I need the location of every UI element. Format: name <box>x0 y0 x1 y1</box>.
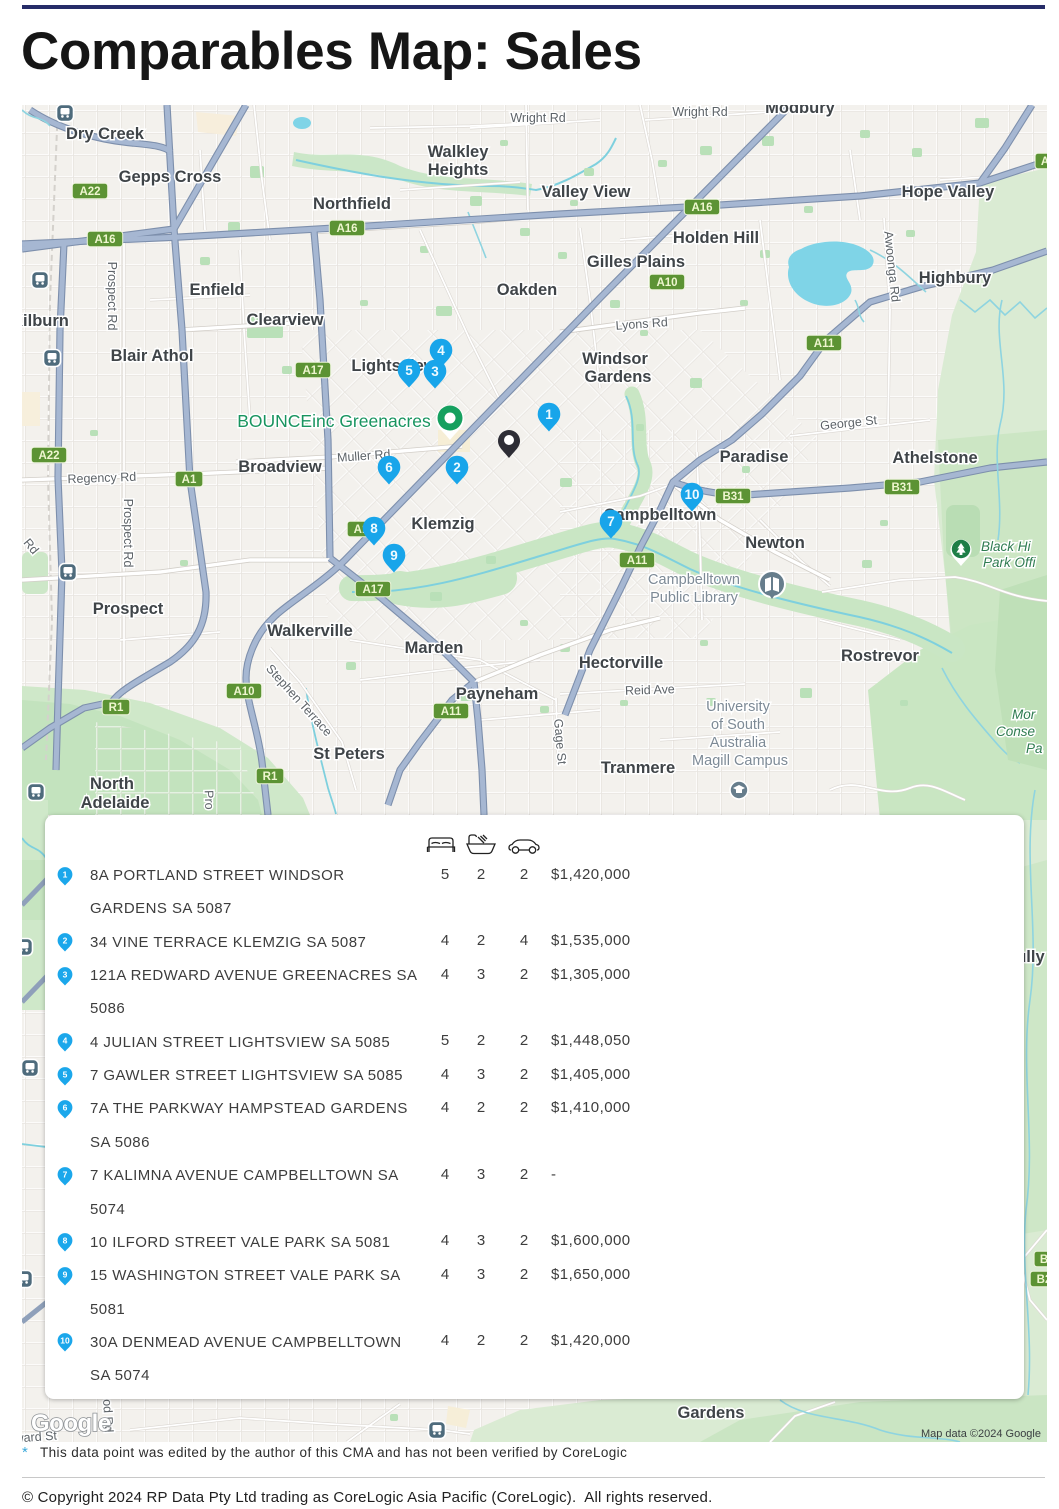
svg-text:2: 2 <box>63 936 68 946</box>
svg-text:Pro: Pro <box>202 790 217 810</box>
svg-text:Highbury: Highbury <box>919 269 992 287</box>
svg-text:Valley View: Valley View <box>542 183 631 201</box>
svg-text:Magill Campus: Magill Campus <box>692 753 788 769</box>
svg-text:Blair Athol: Blair Athol <box>111 347 194 365</box>
svg-text:3: 3 <box>431 364 439 379</box>
svg-text:A10: A10 <box>656 277 677 289</box>
svg-text:B: B <box>1040 1254 1047 1266</box>
svg-text:3: 3 <box>63 969 68 979</box>
svg-text:Gilles Plains: Gilles Plains <box>587 253 685 271</box>
svg-text:Marden: Marden <box>405 639 464 657</box>
svg-text:7: 7 <box>63 1169 68 1179</box>
svg-text:4: 4 <box>63 1036 68 1046</box>
svg-text:Kilburn: Kilburn <box>22 312 69 330</box>
svg-text:9: 9 <box>63 1269 68 1279</box>
svg-text:Pa: Pa <box>1026 741 1043 756</box>
svg-text:Dry Creek: Dry Creek <box>66 125 145 143</box>
svg-text:Holden Hill: Holden Hill <box>673 229 759 247</box>
svg-text:A16: A16 <box>691 202 712 214</box>
svg-text:Walkerville: Walkerville <box>267 622 353 640</box>
svg-text:B31: B31 <box>722 491 744 503</box>
svg-text:Hope Valley: Hope Valley <box>902 183 995 201</box>
svg-text:2: 2 <box>453 460 461 475</box>
svg-text:Northfield: Northfield <box>313 195 391 213</box>
svg-text:Mor: Mor <box>1012 707 1036 722</box>
svg-text:A22: A22 <box>38 450 59 462</box>
svg-text:8: 8 <box>370 521 378 536</box>
svg-text:University: University <box>706 699 770 715</box>
svg-text:10: 10 <box>60 1336 70 1346</box>
svg-text:A16: A16 <box>94 234 115 246</box>
svg-text:B2: B2 <box>1037 1274 1047 1286</box>
svg-text:5: 5 <box>63 1069 68 1079</box>
svg-text:10: 10 <box>684 487 699 502</box>
svg-text:Tranmere: Tranmere <box>601 759 675 777</box>
svg-text:BOUNCEinc Greenacres: BOUNCEinc Greenacres <box>237 411 431 431</box>
svg-text:A22: A22 <box>79 186 100 198</box>
svg-text:Conse: Conse <box>996 724 1035 739</box>
svg-text:St Peters: St Peters <box>313 745 385 763</box>
svg-text:5: 5 <box>405 363 413 378</box>
svg-text:A11: A11 <box>441 706 462 718</box>
svg-text:A1: A1 <box>182 474 197 486</box>
svg-text:A10: A10 <box>233 686 254 698</box>
svg-text:6: 6 <box>385 460 393 475</box>
svg-text:7: 7 <box>607 514 615 529</box>
svg-text:Wright Rd: Wright Rd <box>510 111 565 125</box>
svg-text:Park Offi: Park Offi <box>983 555 1037 570</box>
svg-text:Walkley: Walkley <box>428 143 490 161</box>
svg-text:A17: A17 <box>302 365 323 377</box>
svg-text:Gardens: Gardens <box>678 1404 745 1422</box>
svg-text:A16: A16 <box>336 223 357 235</box>
svg-text:Heights: Heights <box>428 161 489 179</box>
svg-text:Oakden: Oakden <box>497 281 558 299</box>
svg-text:Athelstone: Athelstone <box>892 449 977 467</box>
svg-text:Wright Rd: Wright Rd <box>672 105 727 119</box>
svg-text:Map data ©2024 Google: Map data ©2024 Google <box>921 1428 1041 1440</box>
svg-text:Paradise: Paradise <box>720 448 789 466</box>
svg-text:Modbury: Modbury <box>765 105 835 117</box>
svg-text:R1: R1 <box>109 702 124 714</box>
svg-text:Payneham: Payneham <box>456 685 539 703</box>
svg-text:of South: of South <box>711 717 765 733</box>
svg-text:Klemzig: Klemzig <box>411 515 474 533</box>
svg-text:Prospect Rd: Prospect Rd <box>121 499 135 568</box>
svg-text:Adelaide: Adelaide <box>81 794 150 812</box>
svg-text:Clearview: Clearview <box>246 311 323 329</box>
svg-text:B31: B31 <box>891 482 913 494</box>
svg-text:Campbelltown: Campbelltown <box>648 572 740 588</box>
svg-text:Hectorville: Hectorville <box>579 654 663 672</box>
svg-text:North: North <box>90 775 134 793</box>
svg-text:A11: A11 <box>814 338 835 350</box>
svg-text:A: A <box>1041 156 1047 168</box>
svg-text:Google: Google <box>31 1410 111 1437</box>
svg-text:A17: A17 <box>362 584 383 596</box>
svg-text:9: 9 <box>390 548 398 563</box>
svg-text:1: 1 <box>545 407 553 422</box>
svg-text:Gepps Cross: Gepps Cross <box>119 168 222 186</box>
svg-text:4: 4 <box>437 343 445 358</box>
svg-text:Prospect: Prospect <box>93 600 164 618</box>
svg-text:Regency Rd: Regency Rd <box>67 470 136 486</box>
svg-text:R1: R1 <box>263 771 278 783</box>
svg-text:A11: A11 <box>627 555 648 567</box>
svg-text:Windsor: Windsor <box>582 350 648 368</box>
svg-text:8: 8 <box>63 1236 68 1246</box>
svg-text:Rostrevor: Rostrevor <box>841 647 920 665</box>
svg-text:6: 6 <box>63 1103 68 1113</box>
svg-text:Broadview: Broadview <box>238 458 322 476</box>
svg-text:Reid Ave: Reid Ave <box>625 682 675 698</box>
svg-text:Gardens: Gardens <box>585 368 652 386</box>
svg-text:Australia: Australia <box>710 735 767 751</box>
svg-text:Black Hi: Black Hi <box>981 539 1032 554</box>
svg-text:Newton: Newton <box>745 534 805 552</box>
svg-text:Enfield: Enfield <box>189 281 244 299</box>
svg-text:1: 1 <box>63 869 68 879</box>
svg-text:Public Library: Public Library <box>650 590 739 606</box>
svg-text:Prospect Rd: Prospect Rd <box>105 262 119 331</box>
